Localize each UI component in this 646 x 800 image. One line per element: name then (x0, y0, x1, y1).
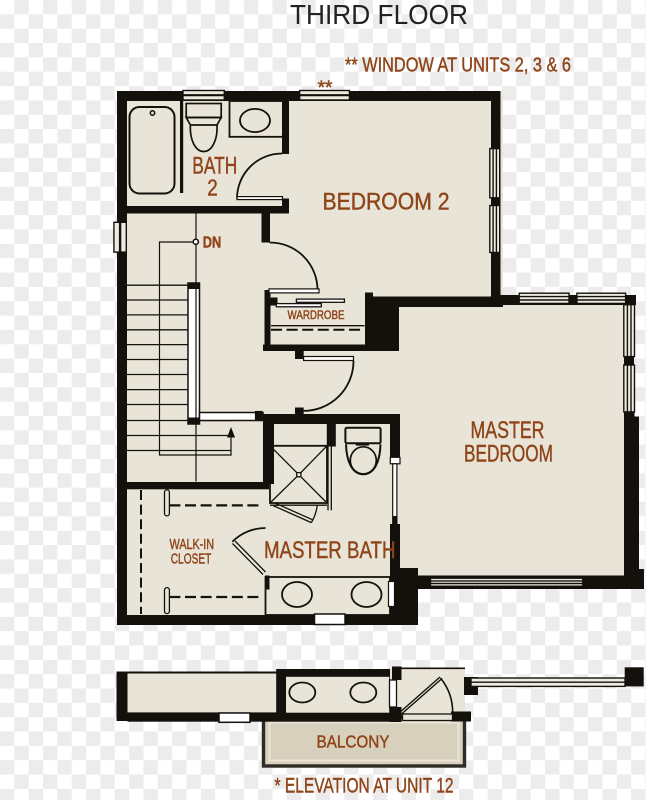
svg-text:THIRD FLOOR: THIRD FLOOR (290, 0, 468, 30)
svg-text:DN: DN (203, 234, 222, 251)
svg-text:BEDROOM 2: BEDROOM 2 (323, 189, 450, 216)
svg-text:BEDROOM: BEDROOM (464, 441, 553, 468)
svg-text:* ELEVATION AT UNIT 12: * ELEVATION AT UNIT 12 (275, 775, 454, 798)
svg-text:2: 2 (207, 175, 218, 201)
svg-text:WARDROBE: WARDROBE (288, 308, 345, 322)
svg-text:MASTER BATH: MASTER BATH (264, 537, 396, 564)
svg-text:** WINDOW AT UNITS 2, 3 & 6: ** WINDOW AT UNITS 2, 3 & 6 (345, 55, 571, 77)
svg-text:CLOSET: CLOSET (171, 550, 212, 567)
svg-text:BALCONY: BALCONY (317, 732, 390, 752)
